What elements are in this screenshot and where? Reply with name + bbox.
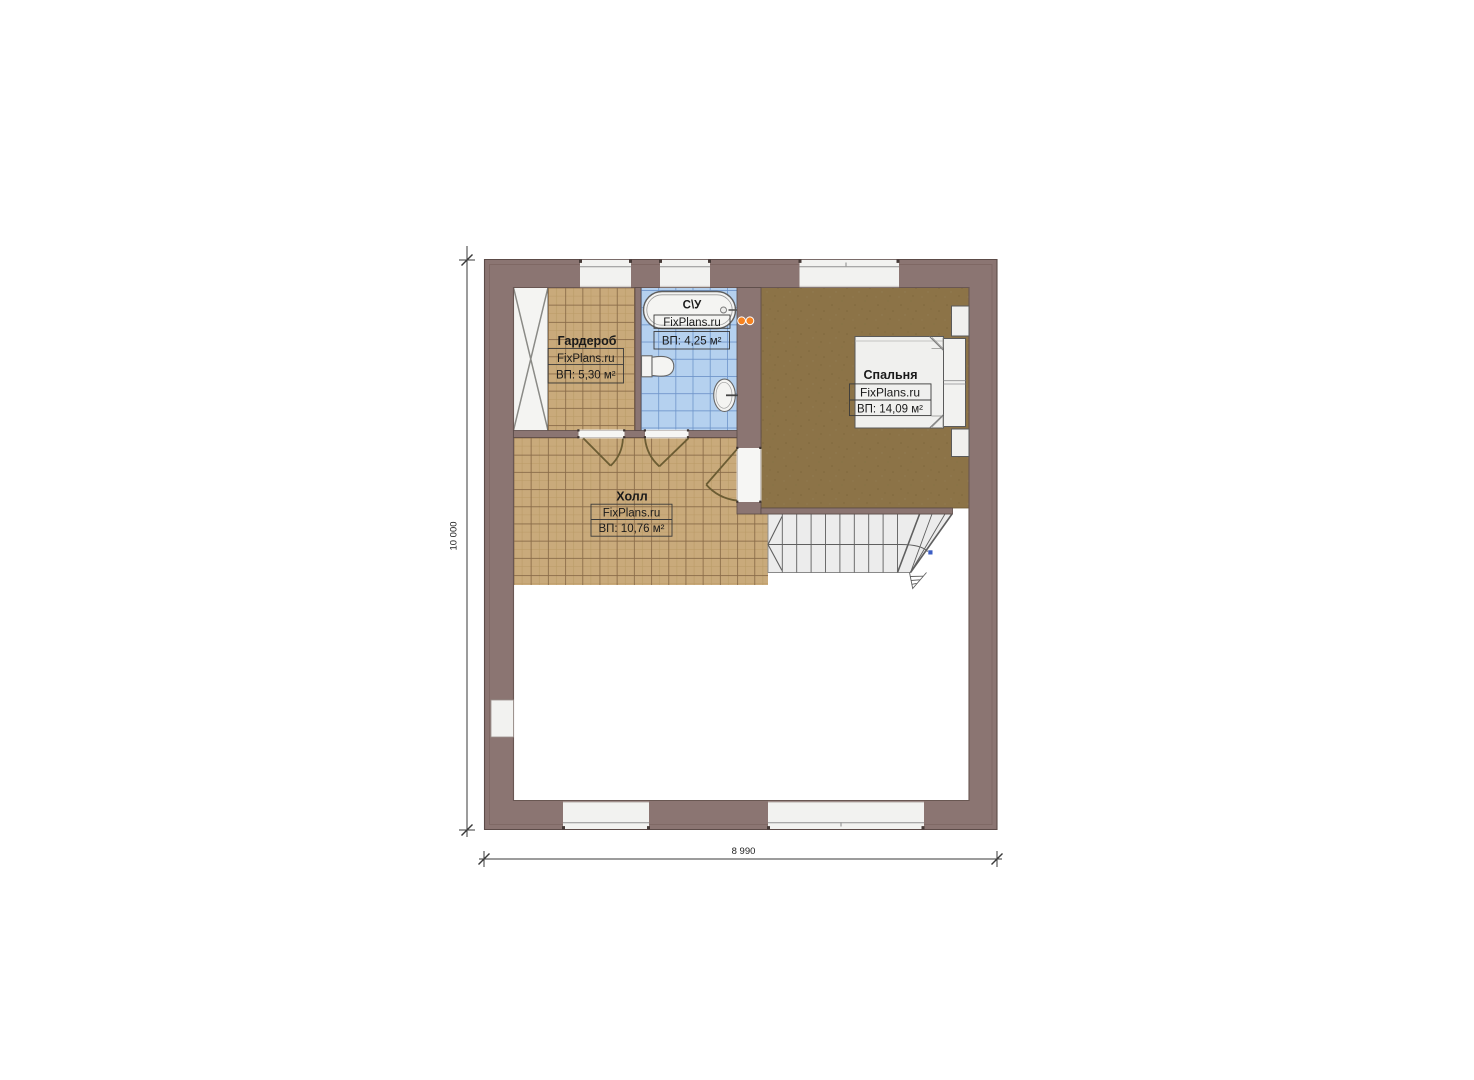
svg-text:FixPlans.ru: FixPlans.ru <box>860 386 920 400</box>
svg-text:FixPlans.ru: FixPlans.ru <box>663 317 721 329</box>
svg-text:Холл: Холл <box>616 489 647 503</box>
svg-text:FixPlans.ru: FixPlans.ru <box>557 353 615 365</box>
svg-text:10 000: 10 000 <box>449 521 460 550</box>
svg-text:FixPlans.ru: FixPlans.ru <box>603 507 661 519</box>
svg-text:ВП: 5,30 м²: ВП: 5,30 м² <box>556 370 616 382</box>
svg-text:ВП: 14,09 м²: ВП: 14,09 м² <box>857 403 923 415</box>
svg-text:8 990: 8 990 <box>732 846 756 857</box>
svg-text:ВП: 10,76 м²: ВП: 10,76 м² <box>598 523 664 535</box>
svg-text:С\У: С\У <box>683 300 703 312</box>
svg-text:ВП: 4,25 м²: ВП: 4,25 м² <box>662 336 722 348</box>
svg-text:Гардероб: Гардероб <box>557 334 616 348</box>
svg-text:Спальня: Спальня <box>864 368 918 382</box>
